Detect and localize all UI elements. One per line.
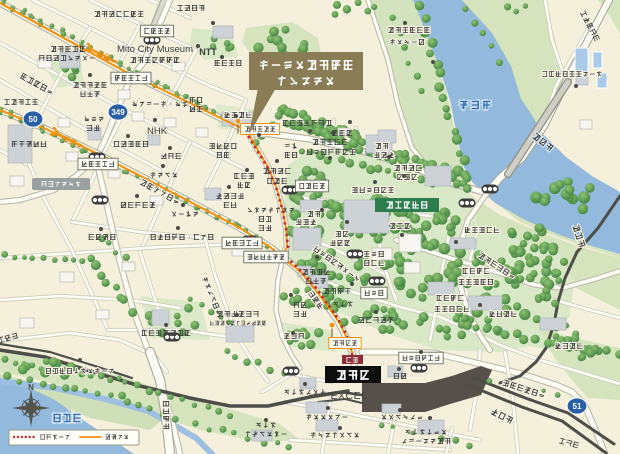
svg-text:349: 349 xyxy=(111,108,125,117)
svg-text:EXCEL: EXCEL xyxy=(331,390,368,402)
svg-text:51: 51 xyxy=(573,402,582,411)
svg-text:NHK: NHK xyxy=(147,126,168,137)
svg-text:N: N xyxy=(28,383,34,392)
svg-text:NTT: NTT xyxy=(199,47,217,57)
svg-text:Mito City Museum: Mito City Museum xyxy=(117,44,193,55)
svg-text:50: 50 xyxy=(29,115,38,124)
